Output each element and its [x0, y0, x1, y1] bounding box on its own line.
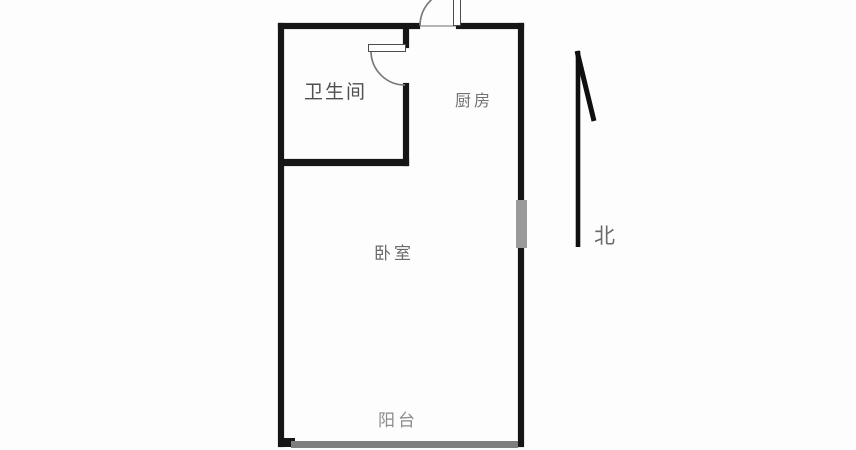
- bathroom-door-arc: [371, 51, 405, 85]
- balcony-label: 阳台: [378, 413, 418, 430]
- bathroom-door-leaf: [368, 44, 406, 52]
- bathroom-label: 卫生间: [304, 83, 367, 102]
- bathroom-wall-bottom: [284, 159, 409, 166]
- kitchen-label: 厨房: [455, 93, 493, 109]
- wall-left: [278, 23, 284, 447]
- side-window-marker: [516, 200, 527, 248]
- north-label: 北: [594, 226, 615, 247]
- plan-overlay-graphics: [0, 0, 856, 450]
- entry-threshold-line: [420, 25, 456, 27]
- balcony-window-marker: [291, 441, 518, 448]
- entry-door-arc: [420, 0, 456, 26]
- wall-top-left-segment: [278, 23, 420, 29]
- north-arrow-barb: [577, 51, 594, 121]
- bathroom-wall-lower-segment: [403, 83, 409, 166]
- entry-door-leaf: [453, 0, 461, 26]
- bedroom-label: 卧室: [374, 246, 414, 263]
- wall-top-right-segment: [456, 23, 524, 29]
- floor-plan: 卫生间 厨房 卧室 阳台 北: [0, 0, 856, 450]
